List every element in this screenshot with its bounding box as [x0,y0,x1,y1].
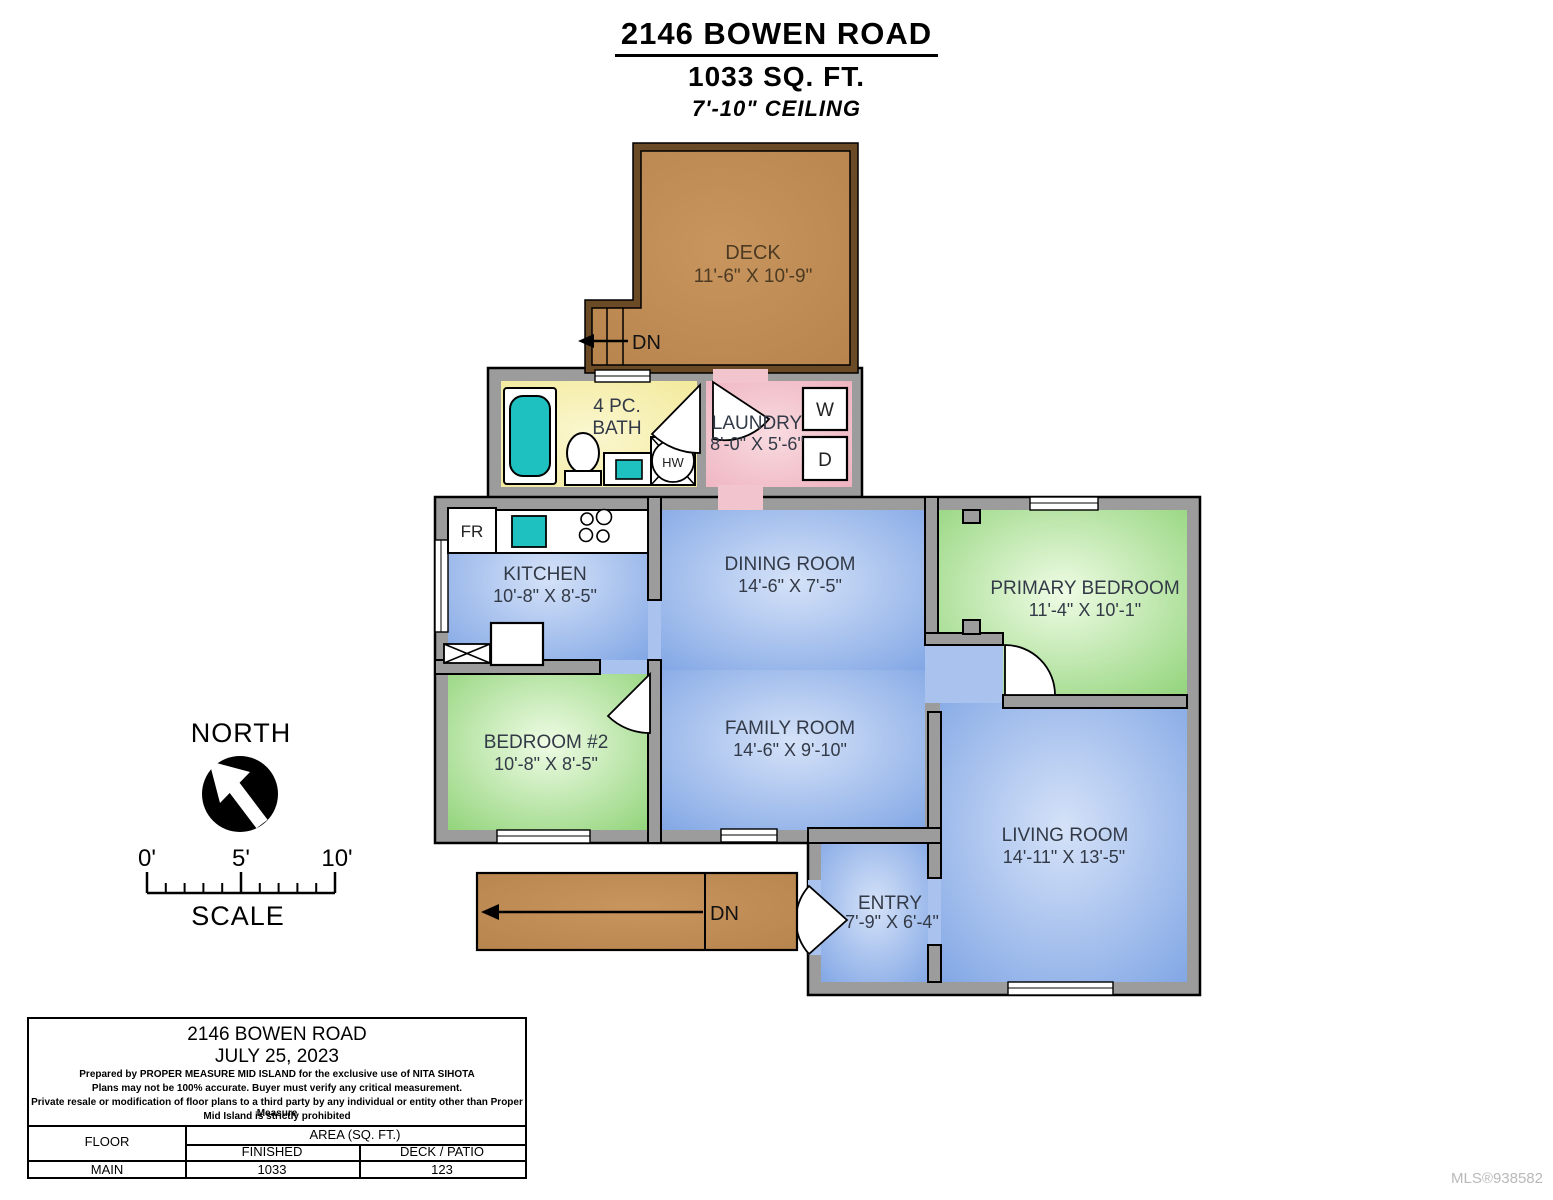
window [1008,982,1113,995]
north-compass: NORTH [191,718,292,832]
window [435,540,448,632]
family-label: FAMILY ROOM [725,718,855,739]
scale-tick-5: 5' [232,845,250,872]
deck-label: DECK [725,242,781,264]
washer-label: W [816,400,834,421]
table-cell-deck-patio: 123 [359,1162,525,1177]
laundry-dining-opening [718,485,763,511]
wall-kitchen-dining [648,497,661,600]
window [1030,497,1098,510]
family-dims: 14'-6" X 9'-10" [733,740,847,760]
primary-bedroom-dims: 11'-4" X 10'-1" [1029,600,1141,620]
bedroom2-door-opening [600,660,648,674]
bath-label-line2: BATH [592,418,641,439]
sink [616,460,642,479]
wall-family-living [928,712,941,878]
entry-label: ENTRY [858,893,922,914]
deck-down-label: DN [632,332,661,354]
laundry-deck-opening [713,369,768,383]
info-disclaimer-4: Mid Island is strictly prohibited [29,1111,525,1122]
wall-dining-primary [925,497,938,633]
window [497,830,590,843]
dishwasher [444,644,490,663]
scale-ruler [147,872,335,893]
window [595,370,650,382]
bedroom2-dims: 10'-8" X 8'-5" [494,754,598,774]
dining-label: DINING ROOM [725,554,856,575]
table-header-floor: FLOOR [29,1134,185,1149]
primary-bedroom-label: PRIMARY BEDROOM [990,578,1179,599]
deck-structure [578,143,858,373]
laundry-label: LAUNDRY [712,413,803,434]
scale-label: SCALE [191,901,285,931]
table-header-deck-patio: DECK / PATIO [359,1144,525,1159]
info-box: 2146 BOWEN ROAD JULY 25, 2023 Prepared b… [27,1017,527,1179]
wall-closet-stub [963,620,980,634]
water-heater-label: HW [662,455,684,470]
kitchen-label: KITCHEN [503,564,586,585]
dining-dims: 14'-6" X 7'-5" [738,576,842,596]
window [721,829,777,842]
hall-floor [925,645,1003,703]
floor-plan-page: 2146 BOWEN ROAD 1033 SQ. FT. 7'-10" CEIL… [0,0,1553,1200]
wall-entry-top [808,828,941,843]
lower-deck [477,873,797,950]
bathtub [510,396,550,476]
kitchen-dims: 10'-8" X 8'-5" [493,586,597,606]
table-cell-floor: MAIN [29,1162,185,1177]
table-cell-finished: 1033 [185,1162,359,1177]
entry-dims: 7'-9" X 6'-4" [845,912,939,932]
mls-watermark: MLS®938582 [1451,1170,1543,1187]
toilet-bowl [567,433,599,473]
living-label: LIVING ROOM [1002,825,1129,846]
kitchen-sink [512,516,546,547]
scale-tick-10: 10' [321,845,352,872]
info-date: JULY 25, 2023 [29,1046,525,1068]
fridge-label: FR [461,522,484,541]
bedroom2-label: BEDROOM #2 [484,732,609,753]
deck-dims: 11'-6" X 10'-9" [694,266,813,287]
kitchen-island [491,623,543,665]
north-label: NORTH [191,718,292,748]
wall-primary-bottom [1003,695,1187,708]
wall-closet-stub [963,510,980,523]
info-address: 2146 BOWEN ROAD [29,1024,525,1046]
toilet-tank [565,471,601,485]
table-header-area: AREA (SQ. FT.) [185,1127,525,1142]
deck-floor [592,151,850,365]
lower-deck-down-label: DN [710,903,739,925]
scale-tick-0: 0' [138,845,156,872]
info-disclaimer-1: Prepared by PROPER MEASURE MID ISLAND fo… [29,1069,525,1080]
laundry-dims: 8'-0" X 5'-6" [710,434,804,454]
kitchen-dining-opening [648,600,661,660]
info-disclaimer-2: Plans may not be 100% accurate. Buyer mu… [29,1083,525,1094]
table-header-finished: FINISHED [185,1144,359,1159]
wall-entry-living-lower [928,945,941,982]
living-dims: 14'-11" X 13'-5" [1003,847,1125,867]
bath-label-line1: 4 PC. [593,396,641,417]
dryer-label: D [818,450,832,471]
